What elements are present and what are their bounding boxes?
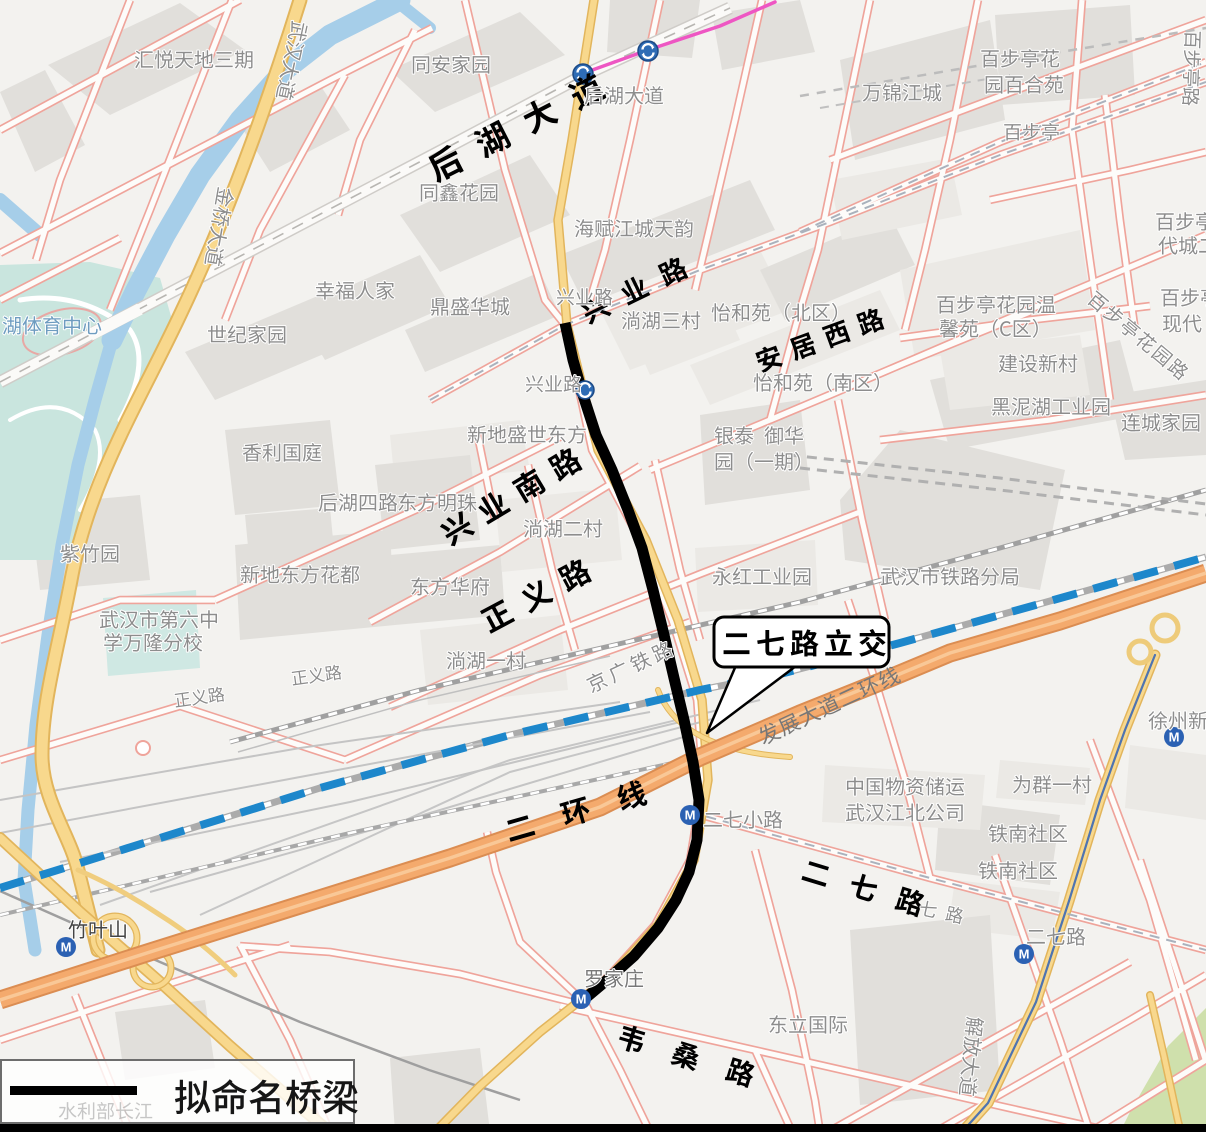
svg-text:M: M bbox=[61, 940, 72, 955]
svg-text:M: M bbox=[685, 808, 696, 823]
svg-text:M: M bbox=[1169, 730, 1180, 745]
svg-text:M: M bbox=[576, 992, 587, 1007]
svg-text:M: M bbox=[1019, 947, 1030, 962]
